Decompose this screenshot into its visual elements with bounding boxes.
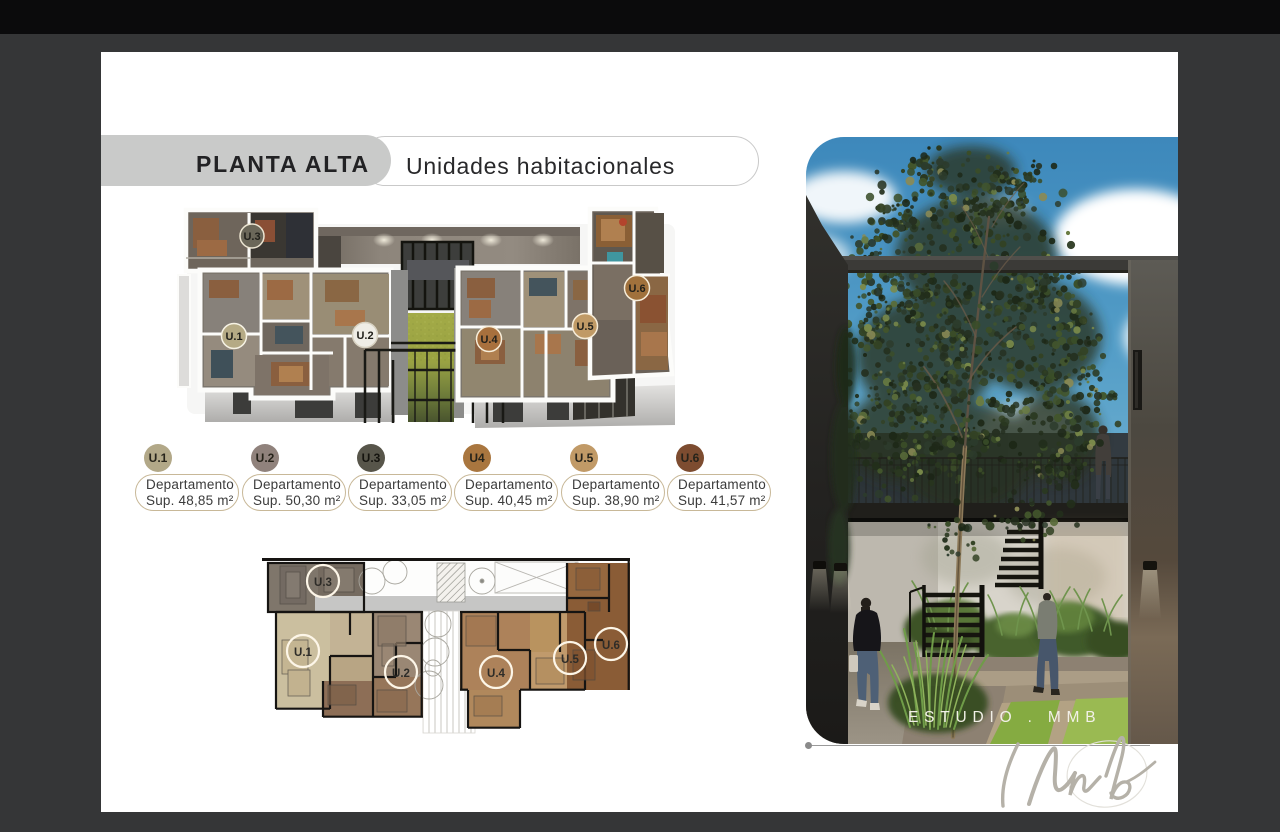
svg-text:U.3: U.3: [243, 231, 260, 243]
svg-text:U.2: U.2: [356, 330, 373, 342]
svg-text:U.6: U.6: [602, 640, 620, 652]
svg-text:U.1: U.1: [225, 331, 242, 343]
svg-text:U.6: U.6: [628, 283, 645, 295]
svg-text:U.3: U.3: [314, 577, 332, 589]
svg-text:U.4: U.4: [487, 668, 506, 680]
svg-text:U.1: U.1: [294, 647, 313, 659]
svg-text:U.5: U.5: [561, 654, 580, 666]
svg-text:U.2: U.2: [392, 668, 410, 680]
svg-text:U.5: U.5: [576, 321, 593, 333]
svg-text:ESTUDIO . MMB: ESTUDIO . MMB: [908, 709, 1101, 726]
svg-text:U.4: U.4: [480, 334, 498, 346]
